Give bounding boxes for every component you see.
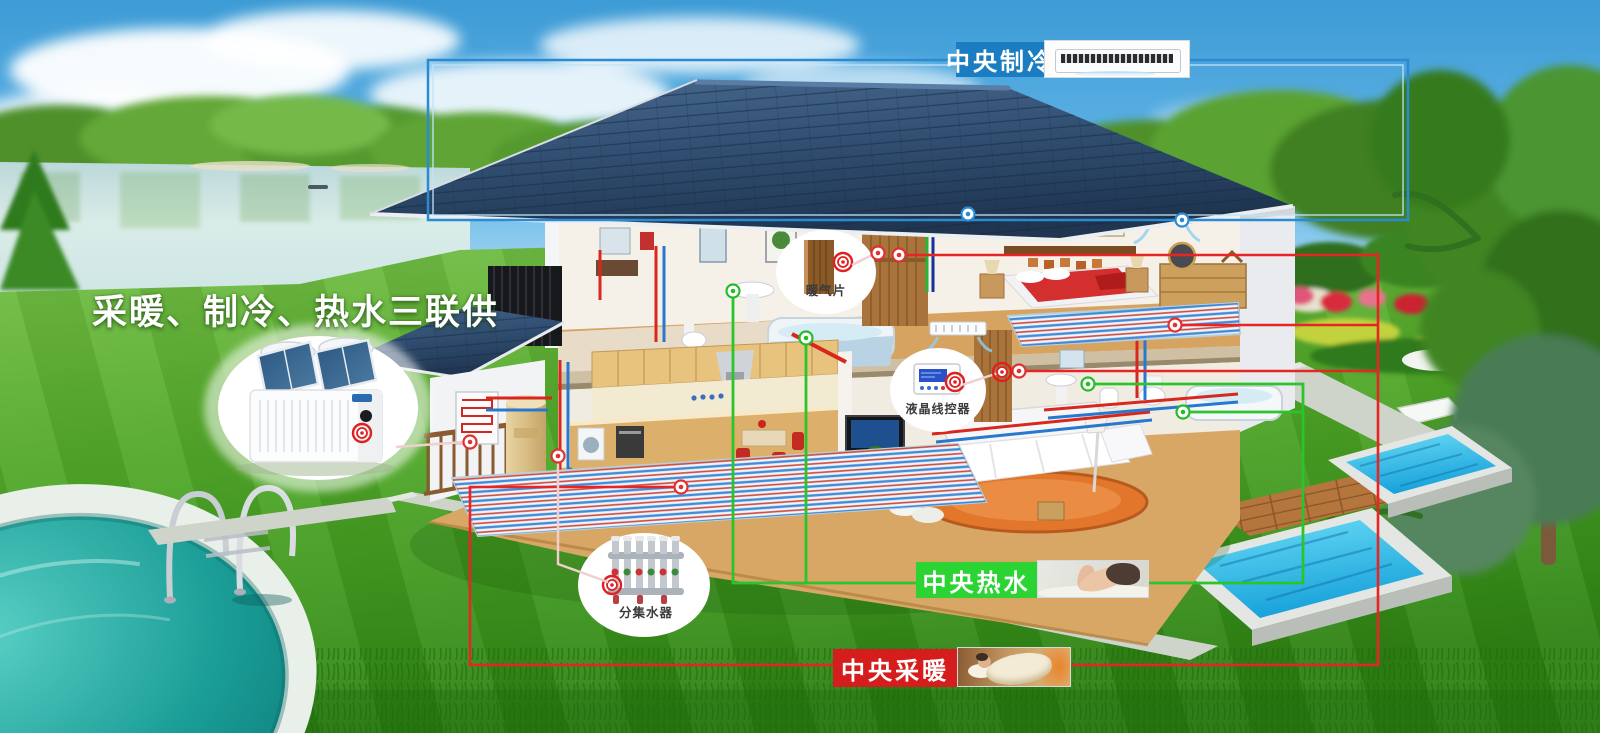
hot-water-photo — [1037, 560, 1149, 598]
radiator-callout — [776, 230, 876, 314]
manifold-label: 分集水器 — [619, 602, 673, 621]
heat-pump-callout — [204, 324, 432, 492]
cooling-badge: 中央制冷 — [956, 42, 1044, 77]
heat-pump-unit — [250, 338, 382, 462]
controller-callout — [890, 348, 986, 432]
cooling-photo — [1044, 40, 1190, 78]
heating-photo — [957, 647, 1071, 687]
controller-label: 液晶线控器 — [905, 400, 970, 417]
radiator-label: 暖气片 — [806, 280, 847, 299]
hot-water-badge: 中央热水 — [916, 562, 1037, 598]
heating-badge: 中央采暖 — [833, 649, 957, 687]
boat — [308, 185, 328, 189]
scene — [0, 0, 1600, 733]
promo-banner: 采暖、制冷、热水三联供 中央制冷 中央热水 中央采暖 暖气片 液晶线控器 分集水… — [0, 0, 1600, 733]
headline: 采暖、制冷、热水三联供 — [92, 284, 499, 335]
kitchen — [570, 340, 838, 472]
manifold-callout — [578, 533, 710, 637]
